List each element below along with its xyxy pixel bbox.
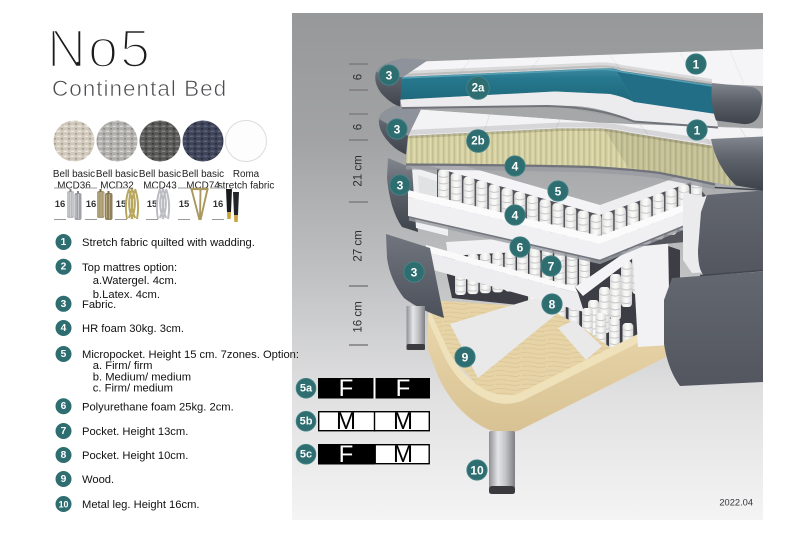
svg-text:2: 2 (61, 262, 67, 273)
svg-text:2b: 2b (471, 136, 484, 148)
svg-text:9: 9 (61, 474, 67, 485)
svg-text:7: 7 (548, 260, 555, 274)
svg-text:a. Firm/ firm: a. Firm/ firm (93, 360, 153, 372)
svg-text:27 cm: 27 cm (353, 230, 365, 261)
svg-text:2022.04: 2022.04 (719, 498, 753, 508)
svg-text:Stretch fabric quilted with wa: Stretch fabric quilted with wadding. (82, 237, 255, 249)
svg-text:Bell basic: Bell basic (182, 169, 224, 180)
svg-text:3: 3 (397, 179, 404, 193)
svg-text:3: 3 (411, 266, 418, 280)
svg-text:4: 4 (512, 209, 519, 223)
svg-text:6: 6 (517, 241, 524, 255)
svg-text:5: 5 (61, 349, 67, 360)
svg-text:15: 15 (179, 199, 190, 210)
svg-text:8: 8 (549, 298, 556, 312)
svg-text:8: 8 (61, 450, 67, 461)
svg-text:c. Firm/ medium: c. Firm/ medium (93, 382, 173, 394)
svg-text:M: M (393, 408, 413, 435)
svg-text:Pocket. Height 13cm.: Pocket. Height 13cm. (82, 426, 188, 438)
svg-text:4: 4 (61, 323, 67, 334)
svg-text:HR foam 30kg. 3cm.: HR foam 30kg. 3cm. (82, 323, 184, 335)
svg-text:Top mattres option:: Top mattres option: (82, 262, 177, 274)
svg-text:Pocket. Height 10cm.: Pocket. Height 10cm. (82, 450, 188, 462)
svg-text:Metal leg. Height 16cm.: Metal leg. Height 16cm. (82, 499, 200, 511)
svg-text:M: M (393, 441, 413, 468)
svg-text:21 cm: 21 cm (353, 155, 365, 186)
svg-text:4: 4 (512, 160, 519, 174)
svg-text:6: 6 (61, 401, 67, 412)
svg-text:No5: No5 (47, 19, 152, 79)
svg-text:Bell basic: Bell basic (53, 169, 95, 180)
svg-text:3: 3 (386, 69, 393, 83)
svg-text:16 cm: 16 cm (353, 301, 365, 332)
svg-text:6: 6 (353, 124, 365, 130)
svg-text:7: 7 (61, 426, 67, 437)
svg-text:Continental Bed: Continental Bed (52, 76, 227, 101)
svg-text:1: 1 (693, 58, 700, 72)
svg-text:Roma: Roma (233, 169, 260, 180)
svg-text:5b: 5b (300, 416, 313, 428)
svg-text:Polyurethane foam 25kg. 2cm.: Polyurethane foam 25kg. 2cm. (82, 401, 234, 413)
svg-text:Bell basic: Bell basic (139, 169, 181, 180)
svg-text:F: F (339, 441, 354, 468)
svg-text:10: 10 (59, 500, 69, 510)
svg-text:16: 16 (213, 199, 224, 210)
svg-text:6: 6 (353, 74, 365, 80)
svg-text:10: 10 (470, 464, 484, 478)
svg-text:MCD36: MCD36 (57, 181, 91, 192)
svg-text:Fabric.: Fabric. (82, 299, 116, 311)
svg-text:5: 5 (555, 185, 562, 199)
svg-text:Bell basic: Bell basic (96, 169, 138, 180)
svg-text:M: M (336, 408, 356, 435)
svg-text:3: 3 (61, 299, 67, 310)
svg-text:F: F (396, 375, 411, 402)
svg-text:16: 16 (55, 199, 66, 210)
svg-text:2a: 2a (472, 83, 485, 95)
svg-text:1: 1 (694, 124, 701, 138)
svg-text:16: 16 (86, 199, 97, 210)
svg-text:Wood.: Wood. (82, 474, 114, 486)
svg-text:5a: 5a (300, 383, 313, 395)
svg-text:3: 3 (394, 123, 401, 137)
svg-text:9: 9 (462, 351, 469, 365)
svg-text:F: F (339, 375, 354, 402)
svg-text:1: 1 (61, 237, 67, 248)
svg-text:a.Watergel. 4cm.: a.Watergel. 4cm. (93, 275, 177, 287)
svg-text:5c: 5c (300, 449, 312, 461)
